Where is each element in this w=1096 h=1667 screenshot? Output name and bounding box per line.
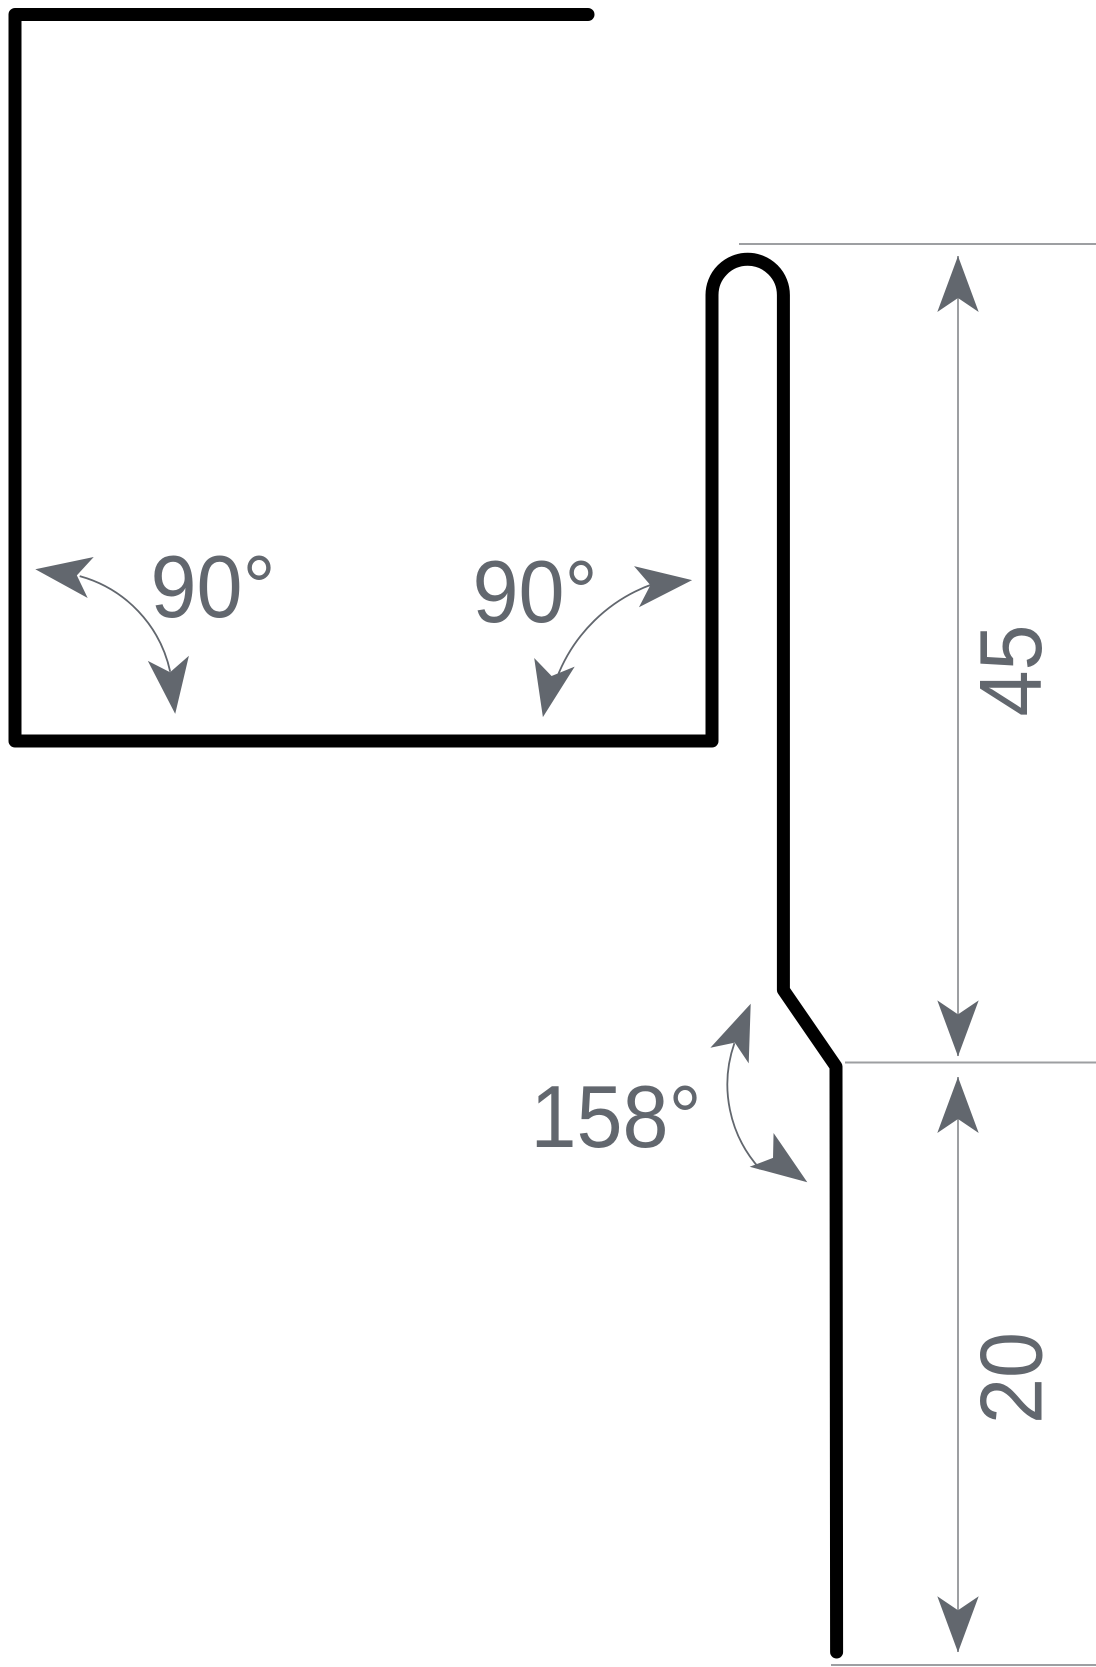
svg-text:90°: 90° bbox=[150, 537, 275, 636]
svg-text:90°: 90° bbox=[472, 542, 597, 641]
svg-text:45: 45 bbox=[961, 624, 1060, 716]
svg-text:158°: 158° bbox=[530, 1067, 701, 1166]
svg-text:20: 20 bbox=[962, 1332, 1061, 1424]
